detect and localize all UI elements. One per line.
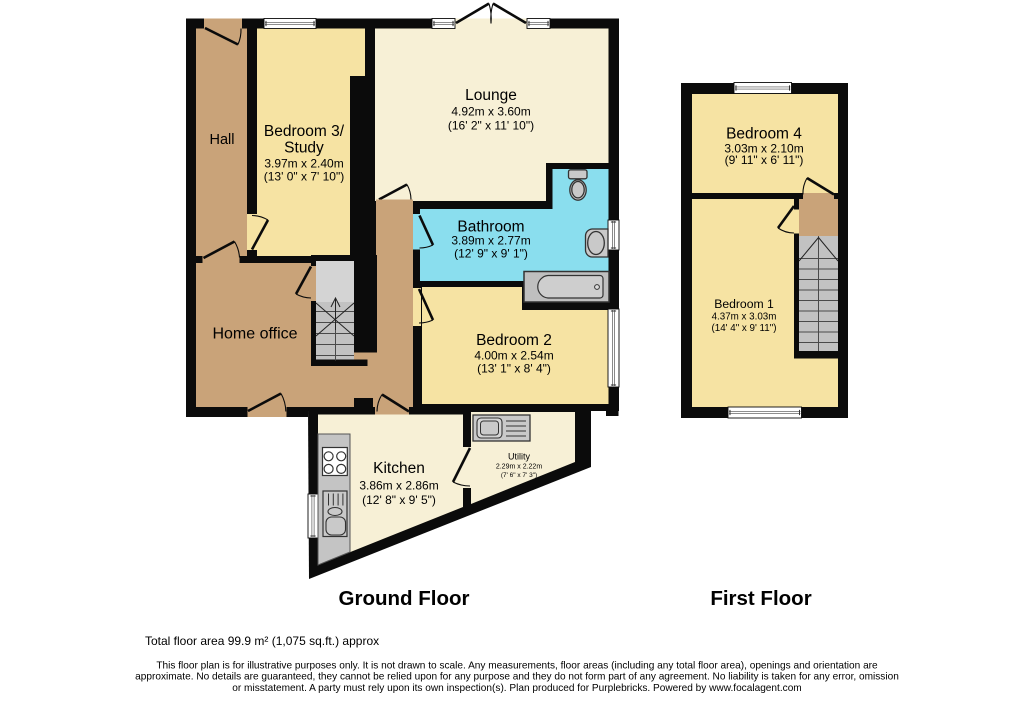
svg-text:Study: Study	[284, 140, 324, 157]
svg-text:or misstatement. A party must: or misstatement. A party must rely upon …	[232, 683, 801, 694]
svg-text:(12' 8" x 9' 5"): (12' 8" x 9' 5")	[362, 493, 436, 507]
svg-text:Home office: Home office	[212, 326, 297, 343]
svg-text:(9' 11" x 6' 11"): (9' 11" x 6' 11")	[725, 153, 804, 167]
svg-text:First Floor: First Floor	[710, 587, 811, 610]
svg-text:Ground Floor: Ground Floor	[339, 587, 470, 610]
svg-text:2.29m x 2.22m: 2.29m x 2.22m	[496, 464, 542, 471]
svg-text:(7' 6" x 7' 3"): (7' 6" x 7' 3")	[501, 472, 537, 479]
svg-text:Kitchen: Kitchen	[373, 460, 425, 477]
svg-text:(12' 9" x 9' 1"): (12' 9" x 9' 1")	[454, 247, 528, 261]
svg-text:(16' 2" x 11' 10"): (16' 2" x 11' 10")	[448, 119, 534, 133]
svg-text:Total floor area 99.9 m² (1,07: Total floor area 99.9 m² (1,075 sq.ft.) …	[145, 634, 379, 648]
svg-text:Bedroom 4: Bedroom 4	[726, 126, 802, 143]
svg-text:3.97m x 2.40m: 3.97m x 2.40m	[264, 157, 343, 171]
svg-text:4.00m x 2.54m: 4.00m x 2.54m	[474, 349, 553, 363]
svg-text:Bedroom 1: Bedroom 1	[714, 297, 774, 311]
svg-text:approximate. No details are gu: approximate. No details are guaranteed, …	[135, 672, 899, 683]
svg-text:Utility: Utility	[508, 452, 530, 462]
svg-text:Bedroom 2: Bedroom 2	[476, 332, 552, 349]
svg-text:This floor plan is for illustr: This floor plan is for illustrative purp…	[156, 660, 878, 671]
svg-text:Bedroom 3/: Bedroom 3/	[264, 123, 345, 140]
svg-text:4.92m x 3.60m: 4.92m x 3.60m	[451, 105, 530, 119]
svg-text:(14' 4" x 9' 11"): (14' 4" x 9' 11")	[712, 323, 777, 334]
svg-text:3.89m x 2.77m: 3.89m x 2.77m	[451, 234, 530, 248]
svg-text:(13' 0" x 7' 10"): (13' 0" x 7' 10")	[264, 170, 344, 184]
svg-text:Lounge: Lounge	[465, 87, 517, 104]
svg-text:4.37m x 3.03m: 4.37m x 3.03m	[712, 312, 777, 323]
svg-text:3.86m x 2.86m: 3.86m x 2.86m	[359, 479, 438, 493]
svg-text:Hall: Hall	[210, 132, 235, 148]
svg-text:(13' 1" x 8' 4"): (13' 1" x 8' 4")	[477, 362, 551, 376]
